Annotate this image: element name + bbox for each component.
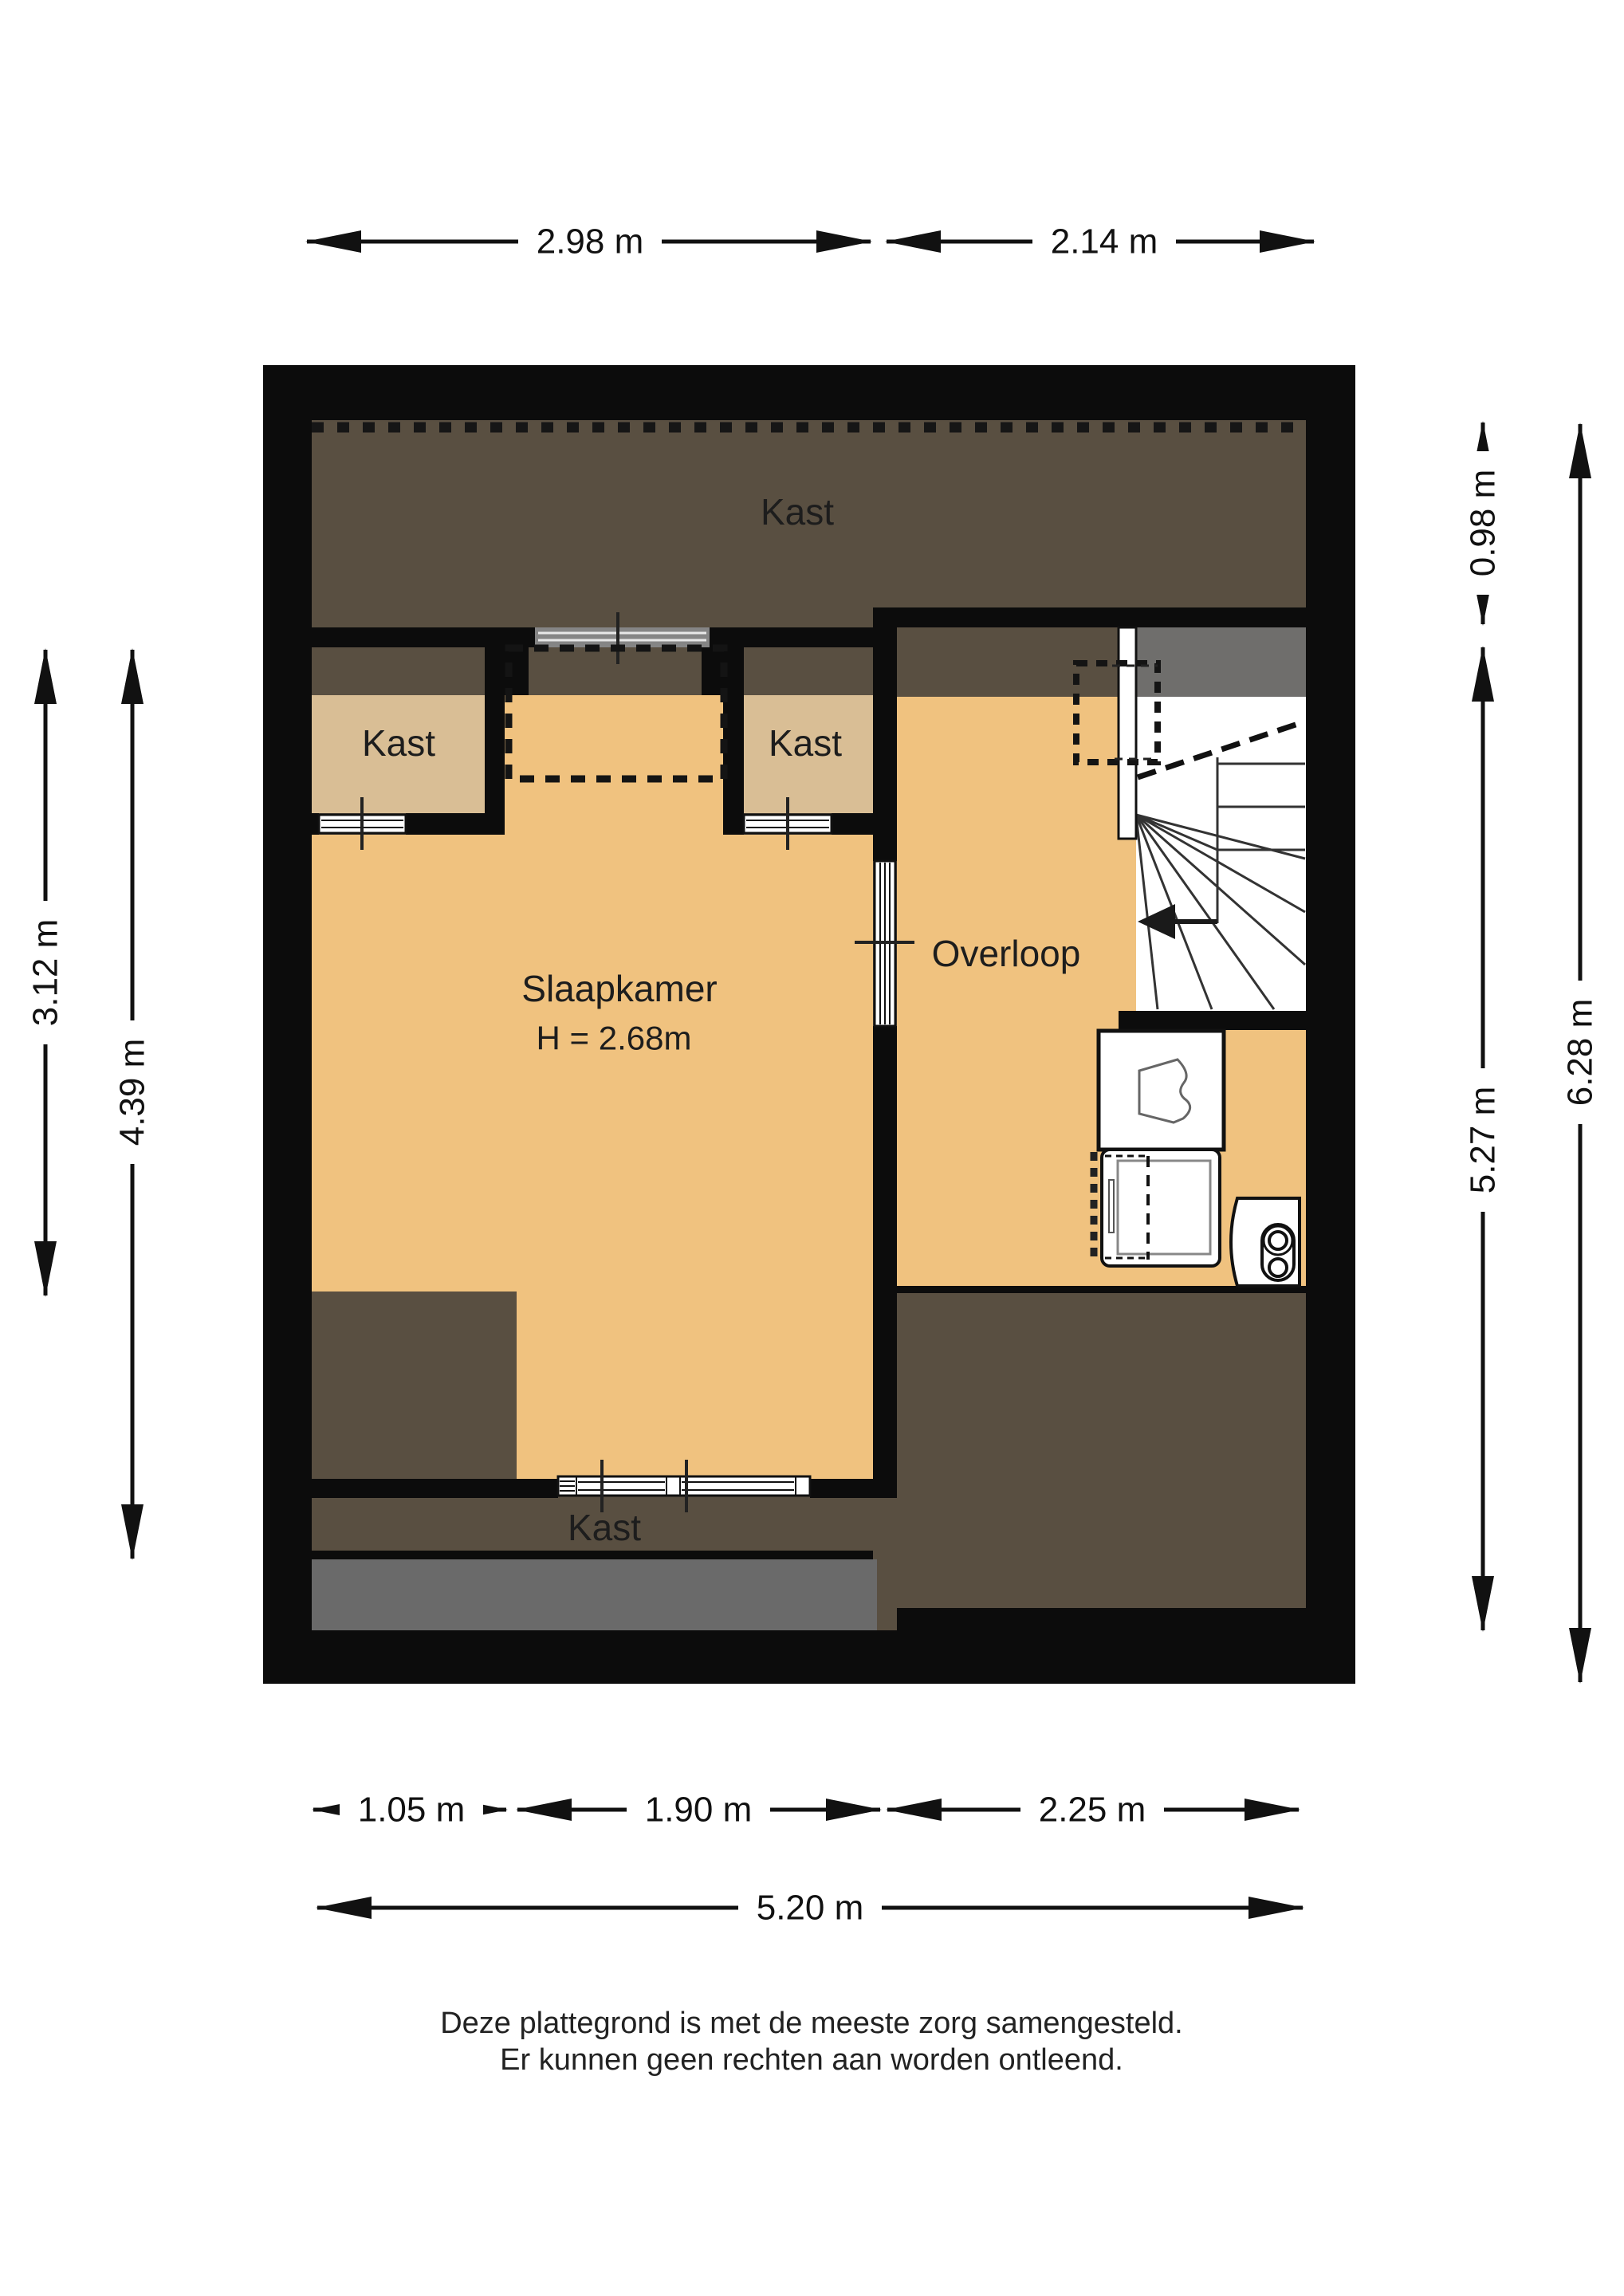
svg-text:2.25 m: 2.25 m — [1039, 1791, 1146, 1830]
ventilation-unit-icon — [1231, 1198, 1300, 1286]
svg-text:5.27 m: 5.27 m — [1464, 1087, 1503, 1194]
dim-right-top: 0.98 m — [1461, 423, 1504, 624]
stairs-bottom-wall — [1119, 1011, 1306, 1030]
wall-overloop-top — [873, 607, 897, 861]
svg-text:1.05 m: 1.05 m — [358, 1791, 466, 1830]
label-kast-left: Kast — [362, 722, 435, 764]
label-slaapkamer: Slaapkamer — [521, 968, 717, 1009]
svg-text:2.14 m: 2.14 m — [1051, 222, 1158, 261]
kast-row-wall-b — [406, 813, 505, 835]
boiler-icon — [1099, 1031, 1224, 1150]
attic-block-left — [312, 1291, 517, 1479]
slaapkamer-south-wall-a — [312, 1479, 558, 1498]
washing-machine-icon — [1094, 1150, 1220, 1266]
dim-bottom-2: 1.90 m — [517, 1788, 880, 1831]
svg-text:2.98 m: 2.98 m — [537, 222, 644, 261]
highwall-vent-frame — [535, 627, 710, 647]
label-slaapkamer-height: H = 2.68m — [537, 1020, 692, 1057]
label-kast-bottom: Kast — [568, 1507, 641, 1548]
footer-disclaimer: Deze plattegrond is met de meeste zorg s… — [440, 2007, 1183, 2077]
footer-line2: Er kunnen geen rechten aan worden ontlee… — [500, 2043, 1123, 2077]
dim-top-right: 2.14 m — [887, 220, 1314, 263]
dim-left-outer: 4.39 m — [111, 650, 154, 1559]
floorplan-canvas: Kast Kast Kast Slaapkamer H = 2.68m Over… — [0, 0, 1624, 2296]
svg-text:0.98 m: 0.98 m — [1464, 470, 1503, 577]
dim-right-main: 5.27 m — [1461, 647, 1504, 1630]
bottom-gray-strip — [312, 1559, 877, 1630]
label-kast-top: Kast — [761, 491, 834, 533]
dim-right-total: 6.28 m — [1559, 424, 1602, 1682]
attic-block-right — [897, 1293, 1306, 1608]
label-overloop: Overloop — [932, 933, 1081, 974]
stairwell-gray-strip — [1136, 627, 1306, 697]
svg-text:1.90 m: 1.90 m — [645, 1791, 753, 1830]
label-kast-right: Kast — [769, 722, 842, 764]
floor-niche — [505, 695, 723, 835]
attic-block-right-base — [897, 1608, 1306, 1630]
dim-top-left: 2.98 m — [307, 220, 871, 263]
svg-text:5.20 m: 5.20 m — [757, 1889, 864, 1928]
slaapkamer-south-wall-b — [810, 1479, 897, 1498]
wall-overloop-bottom — [873, 1026, 897, 1479]
stair-well — [1136, 697, 1306, 1011]
svg-text:4.39 m: 4.39 m — [113, 1039, 152, 1146]
pillar-left-top — [485, 627, 529, 695]
stair-stringer — [1119, 627, 1136, 839]
wall-top-right — [873, 607, 1306, 627]
dim-left-inner: 3.12 m — [24, 650, 67, 1295]
dim-bottom-1: 1.05 m — [313, 1788, 506, 1831]
dim-bottom-3: 2.25 m — [887, 1788, 1299, 1831]
kast-row-wall-c — [832, 813, 873, 835]
svg-text:6.28 m: 6.28 m — [1561, 999, 1600, 1107]
kast-band-line — [312, 1551, 873, 1559]
svg-text:3.12 m: 3.12 m — [26, 919, 65, 1027]
dim-bottom-total: 5.20 m — [317, 1886, 1303, 1929]
footer-line1: Deze plattegrond is met de meeste zorg s… — [440, 2007, 1183, 2040]
